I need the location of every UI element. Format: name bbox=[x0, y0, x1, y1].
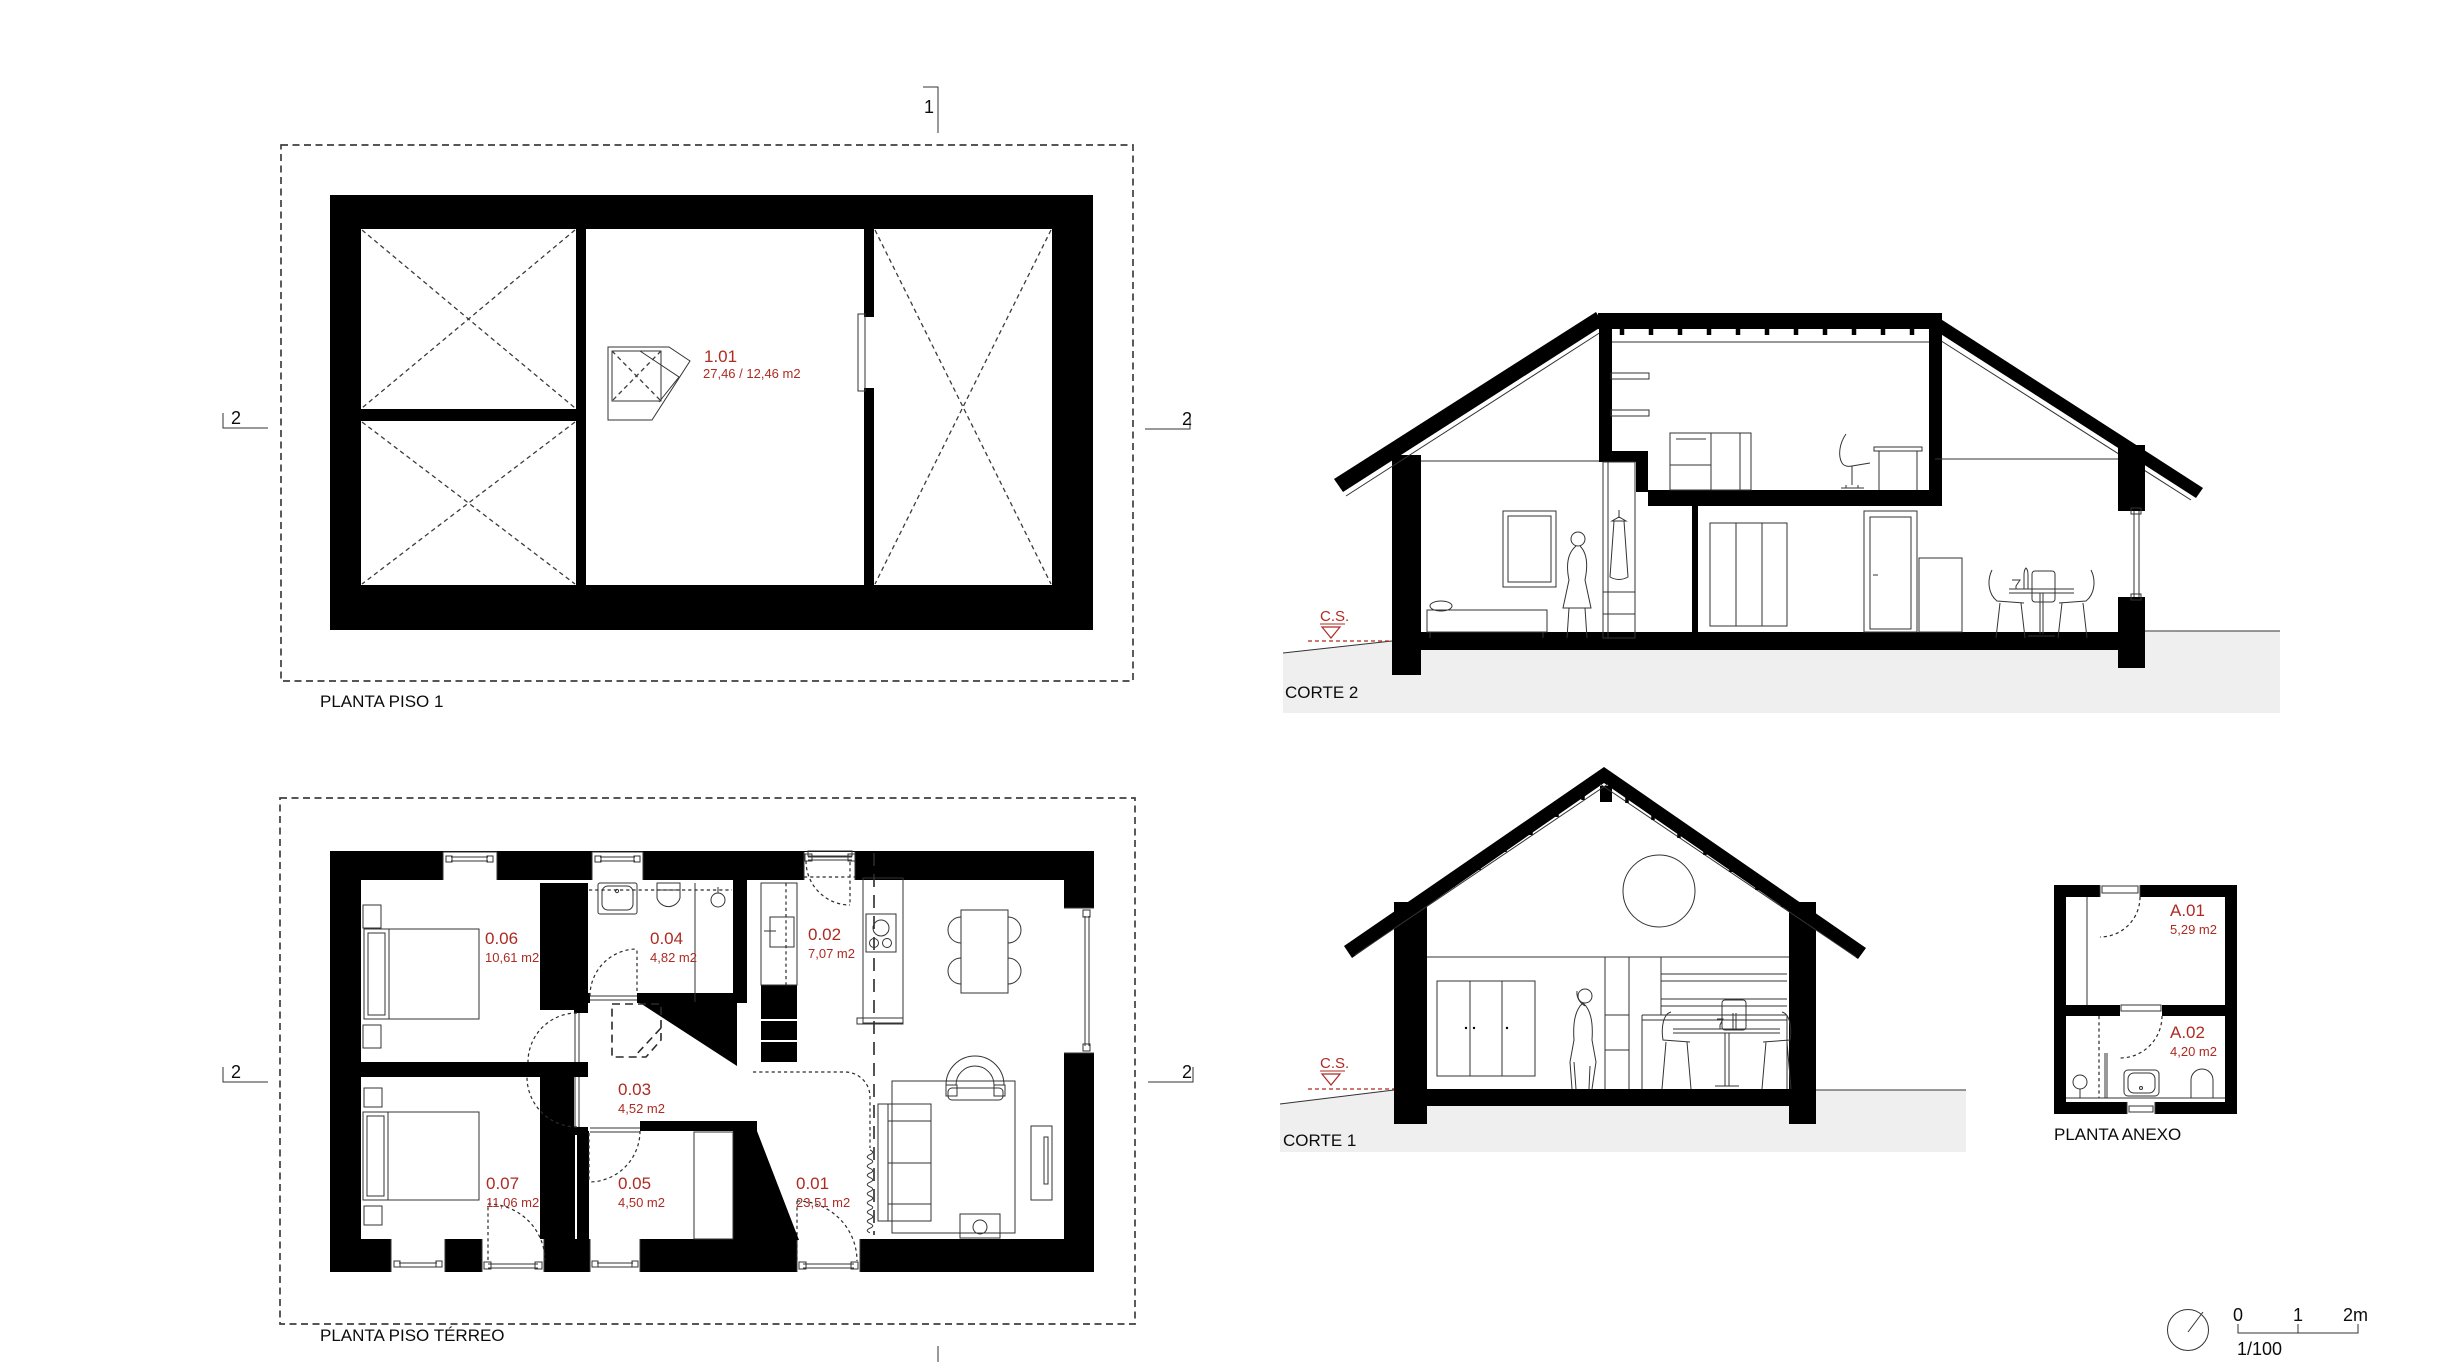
svg-text:1/100: 1/100 bbox=[2237, 1339, 2282, 1359]
svg-text:1.01: 1.01 bbox=[704, 347, 737, 366]
svg-text:A.02: A.02 bbox=[2170, 1023, 2205, 1042]
svg-text:2: 2 bbox=[1182, 409, 1192, 429]
svg-text:27,46 / 12,46 m2: 27,46 / 12,46 m2 bbox=[703, 366, 801, 381]
svg-text:4,52 m2: 4,52 m2 bbox=[618, 1101, 665, 1116]
svg-text:23,51 m2: 23,51 m2 bbox=[796, 1195, 850, 1210]
svg-text:11,06 m2: 11,06 m2 bbox=[486, 1195, 539, 1210]
svg-text:PLANTA PISO 1: PLANTA PISO 1 bbox=[320, 692, 443, 711]
svg-text:4,50 m2: 4,50 m2 bbox=[618, 1195, 665, 1210]
svg-text:2m: 2m bbox=[2343, 1305, 2368, 1325]
svg-text:0.01: 0.01 bbox=[796, 1174, 829, 1193]
svg-text:2: 2 bbox=[231, 408, 241, 428]
svg-text:10,61 m2: 10,61 m2 bbox=[485, 950, 539, 965]
svg-text:0.06: 0.06 bbox=[485, 929, 518, 948]
svg-text:CORTE 1: CORTE 1 bbox=[1283, 1131, 1356, 1150]
svg-text:2: 2 bbox=[231, 1062, 241, 1082]
svg-text:0.04: 0.04 bbox=[650, 929, 683, 948]
svg-text:2: 2 bbox=[1182, 1062, 1192, 1082]
svg-text:PLANTA PISO TÉRREO: PLANTA PISO TÉRREO bbox=[320, 1326, 505, 1345]
svg-text:5,29 m2: 5,29 m2 bbox=[2170, 922, 2217, 937]
svg-text:7,07 m2: 7,07 m2 bbox=[808, 946, 855, 961]
svg-text:0.02: 0.02 bbox=[808, 925, 841, 944]
svg-text:A.01: A.01 bbox=[2170, 901, 2205, 920]
svg-text:4,82 m2: 4,82 m2 bbox=[650, 950, 697, 965]
svg-text:1: 1 bbox=[924, 97, 934, 117]
svg-text:0.07: 0.07 bbox=[486, 1174, 519, 1193]
svg-text:1: 1 bbox=[2293, 1305, 2303, 1325]
svg-text:0.03: 0.03 bbox=[618, 1080, 651, 1099]
svg-text:PLANTA ANEXO: PLANTA ANEXO bbox=[2054, 1125, 2181, 1144]
svg-text:0: 0 bbox=[2233, 1305, 2243, 1325]
svg-text:C.S.: C.S. bbox=[1320, 608, 1349, 625]
svg-text:C.S.: C.S. bbox=[1320, 1055, 1349, 1072]
svg-text:CORTE 2: CORTE 2 bbox=[1285, 683, 1358, 702]
svg-text:0.05: 0.05 bbox=[618, 1174, 651, 1193]
svg-text:4,20 m2: 4,20 m2 bbox=[2170, 1044, 2217, 1059]
